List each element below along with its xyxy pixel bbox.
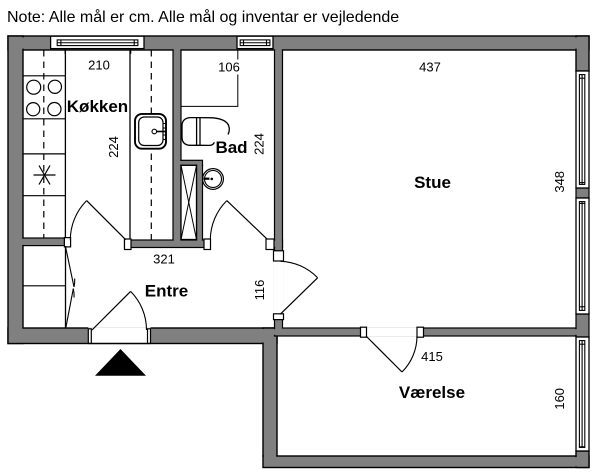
- svg-text:210: 210: [88, 58, 110, 73]
- svg-text:224: 224: [251, 133, 266, 155]
- svg-text:Entre: Entre: [145, 282, 188, 301]
- svg-text:Stue: Stue: [414, 173, 451, 192]
- svg-text:415: 415: [421, 349, 443, 364]
- svg-text:116: 116: [252, 280, 267, 301]
- svg-text:437: 437: [419, 59, 441, 74]
- svg-text:160: 160: [552, 388, 567, 410]
- svg-text:348: 348: [552, 171, 567, 193]
- svg-text:106: 106: [218, 60, 240, 75]
- svg-text:Køkken: Køkken: [67, 97, 128, 116]
- svg-text:Bad: Bad: [215, 138, 247, 157]
- svg-text:224: 224: [106, 136, 121, 158]
- svg-text:Note: Alle mål er cm. Alle mål: Note: Alle mål er cm. Alle mål og invent…: [7, 8, 399, 26]
- svg-text:321: 321: [153, 252, 175, 267]
- svg-text:Værelse: Værelse: [399, 383, 465, 402]
